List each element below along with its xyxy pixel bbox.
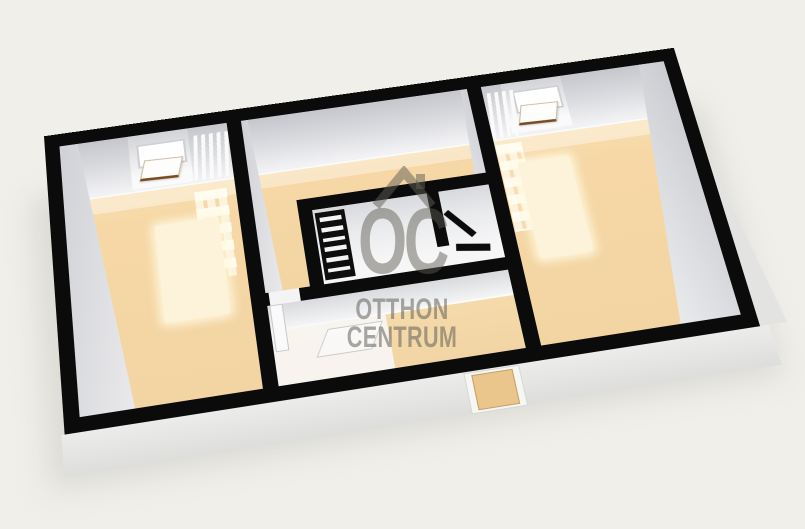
shelf-slats-top [319, 215, 345, 243]
left-rug [155, 217, 231, 323]
door-ajar-base [456, 244, 491, 251]
floor-plan-image: { "meta": { "description": "3D rendered … [0, 0, 805, 529]
floorplan-3d-scene [44, 48, 760, 435]
shelf-slats-bottom [324, 244, 350, 272]
entry-door [471, 369, 520, 411]
